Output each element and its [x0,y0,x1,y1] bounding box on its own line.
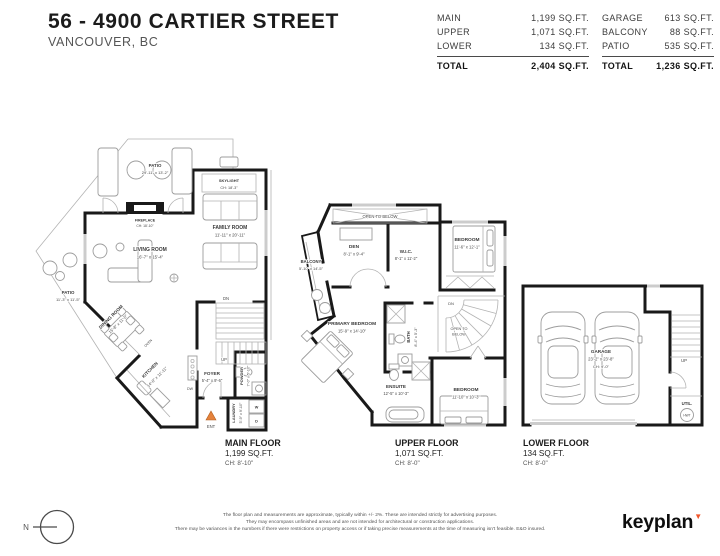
room-dims-balcony: 5'-10" x 14'-5" [299,266,324,271]
pillow [445,417,461,423]
logo-accent-icon: ▼ [694,512,702,521]
room-ch-garage: CH: 9'-0" [593,364,610,369]
sink-icon [256,385,263,392]
pillow [487,230,493,246]
main-floor-ceiling: CH: 8'-10" [225,460,253,467]
nightstand [301,330,312,341]
room-dims-den: 8'-1" x 9'-4" [343,252,365,257]
room-label-foyer: FOYER [204,371,221,376]
north-compass: N [23,511,73,544]
stairs-up-label: UP [681,358,687,363]
stair-treads [216,308,264,333]
side-table [116,243,124,251]
lower-floor-title: LOWER FLOOR [523,438,590,448]
lower-floor-plan: HWT GARAGE 23'-2" x 23'-8" CH: 9'-0" UP … [523,286,702,467]
room-label-laundry: LAUNDRY [231,403,236,423]
den-door-swings [350,269,386,287]
car [538,312,588,404]
patio-chair [43,261,57,275]
toilet-icon [395,335,405,343]
room-label-fireplace: FIREPLACE [135,219,156,223]
room-dims-foyer: 5'-4" x 9'-6" [202,378,223,383]
armchair [93,244,107,258]
oven-label: OVEN [143,338,153,348]
room-label-powder: POWDER [239,367,244,385]
upper-floor-plan: OPEN TO BELOW BALCONY 5'-10" x 14'-5" DE… [299,205,505,467]
room-dims-patio-left: 11'-3" x 11'-5" [56,297,81,302]
pillow [466,417,482,423]
room-label-living: LIVING ROOM [133,247,167,253]
desk [340,228,372,240]
main-floor-area: 1,199 SQ.FT. [225,449,273,458]
compass-north-label: N [23,523,29,532]
room-label-skylight: SKYLIGHT [219,178,240,183]
main-floor-title: MAIN FLOOR [225,438,281,448]
room-label-primary: PRIMARY BEDROOM [328,321,376,327]
room-label-patio-left: PATIO [62,290,75,295]
room-label-balcony: BALCONY [301,259,322,264]
pillow [487,250,493,266]
room-dims-bedroom-bottom: 11'-10" x 10'-3" [452,395,480,400]
upper-floor-ceiling: CH: 8'-0" [395,460,420,467]
room-label-family: FAMILY ROOM [213,225,248,231]
hall-door [470,346,486,358]
room-label-bedroom-top: BEDROOM [454,237,479,243]
patio-sofa [172,148,192,194]
floor-plan-drawing: W D ENT PATIO 29'-11" x 13'-2" SKYLIGHT … [0,0,720,556]
entry-arrow [206,411,216,420]
keyplan-logo: keyplan▼ [622,511,701,534]
upper-floor-area: 1,071 SQ.FT. [395,449,443,458]
patio-bench [220,157,238,167]
stairs-dn-label: DN [223,296,229,301]
room-dims-ensuite: 12'-5" x 10'-3" [383,391,409,396]
sofa [203,194,257,220]
room-label-bath: BATH [406,331,411,342]
disclaimer-line: They may encompass unfinished areas and … [155,519,565,526]
room-ch-skylight: CH: 18'-3" [220,186,238,190]
room-label-garage: GARAGE [591,349,611,354]
room-dims-patio-top: 29'-11" x 13'-2" [142,170,169,175]
closet-doors [446,276,494,288]
room-dims-bedroom-top: 11'-6" x 12'-1" [454,245,480,250]
door-swing [670,372,686,388]
room-dims-bath: 8'-4" x 5'-3" [414,327,418,347]
disclaimer-line: There may be variances in the numbers if… [155,526,565,533]
room-dims-garage: 23'-2" x 23'-8" [588,357,614,362]
room-label-wic: W.I.C. [400,249,413,254]
balcony-chair [320,303,331,314]
stair-open-label-1: OPEN TO [451,327,468,331]
patio-sofa [98,148,118,196]
util-label: UTIL. [682,401,693,406]
balcony-hatch [306,242,321,313]
disclaimer-text: The floor plan and measurements are appr… [155,512,565,533]
logo-text: keyplan [622,511,693,533]
stair-treads [672,315,700,351]
sofa [203,243,257,269]
toilet-tank [389,334,394,344]
floor-plan-flyer: 56 - 4900 CARTIER STREET VANCOUVER, BC M… [0,0,720,556]
dishwasher-label: DW [187,387,194,391]
vanity [252,382,266,395]
room-label-den: DEN [349,244,360,250]
fireplace-opening [134,205,156,211]
entry-label: ENT [207,424,216,429]
room-label-patio-top: PATIO [149,163,162,168]
vanity [398,354,412,366]
stairs-up-label: UP [221,357,227,362]
room-dims-laundry: 5'-9" x 9'-10" [239,402,243,423]
toilet-tank [389,364,399,369]
patio-table [56,272,65,281]
room-dims-living: 16'-7" x 15'-4" [137,255,164,260]
room-dims-wic: 8'-1" x 11'-2" [395,256,418,261]
toilet-icon [390,370,399,381]
room-label-bedroom-bottom: BEDROOM [453,387,478,393]
upper-floor-title: UPPER FLOOR [395,438,459,448]
dryer-label: D [255,420,258,424]
room-dims-primary: 15'-9" x 14'-10" [338,329,367,334]
balcony-chair [312,290,323,301]
kitchen-island [150,388,170,408]
room-ch-fireplace: CH: 18'-10" [136,224,154,228]
disclaimer-line: The floor plan and measurements are appr… [155,512,565,519]
patio-chair [63,253,77,267]
stair-open-label-2: BELOW [452,333,466,337]
room-label-ensuite: ENSUITE [386,384,406,389]
main-floor-plan: W D ENT PATIO 29'-11" x 13'-2" SKYLIGHT … [36,139,281,467]
hwt-label: HWT [683,414,690,418]
sink-icon [402,357,409,364]
lower-floor-ceiling: CH: 8'-0" [523,460,548,467]
washer-label: W [255,406,259,410]
room-dims-family: 11'-11" x 20'-11" [215,233,246,238]
open-to-below-label: OPEN TO BELOW [363,214,398,219]
stairs-dn-label: DN [448,301,454,306]
lower-floor-area: 134 SQ.FT. [523,449,564,458]
room-dims-powder: 7'-0" x 5'-10" [247,365,251,386]
